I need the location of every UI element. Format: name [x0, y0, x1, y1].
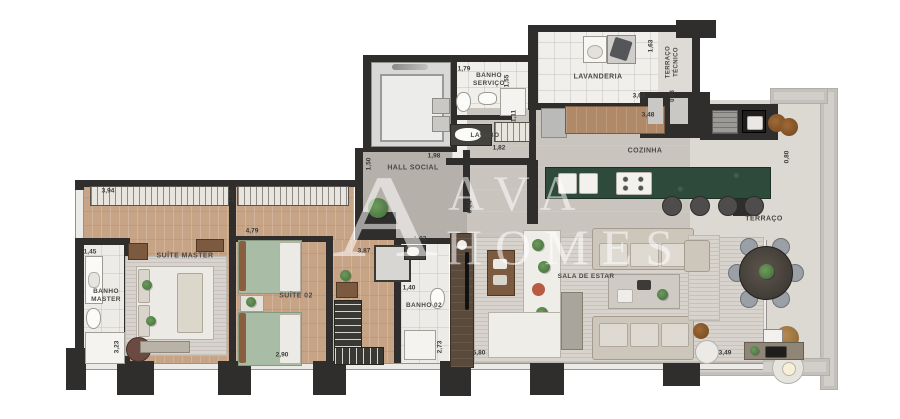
wall-lavabo-bottom	[446, 158, 536, 165]
bed2-suite-02	[238, 312, 302, 366]
dresser-suite-master	[196, 239, 224, 252]
speaker	[457, 240, 467, 250]
terrace-dining-table	[739, 246, 793, 300]
duct-shaft-2	[432, 116, 450, 132]
centerpiece-plant	[759, 264, 774, 279]
wall-servico-top	[446, 55, 536, 62]
sink-banho-master	[88, 272, 100, 288]
tv-screen	[465, 252, 469, 310]
dim-hall-depth: 6,04	[467, 201, 474, 214]
wall-lavanderia-left	[528, 25, 538, 110]
dim-suite-master-width: 2,90	[276, 352, 289, 359]
island-stool-1	[662, 196, 682, 216]
terrace-lounge-chair	[684, 240, 710, 272]
dim-lavabo-counter: 1,11	[511, 110, 518, 122]
sink-banho-servico	[478, 92, 497, 105]
coffee-table-wood	[487, 250, 515, 296]
label-sala-de-estar: SALA DE ESTAR	[558, 273, 615, 281]
pillar-2	[117, 361, 154, 395]
label-terraco: TERRAÇO	[745, 216, 782, 225]
dim-closet: 3,87	[358, 248, 371, 255]
label-lavabo: LAVABO	[471, 132, 500, 140]
terrace-parapet-top	[770, 88, 828, 104]
dim-sala-width: 5,80	[473, 350, 486, 357]
laundry-sink	[583, 36, 607, 63]
books	[617, 289, 633, 303]
label-terraco-tecnico: TERRAÇO TÉCNICO	[666, 39, 681, 85]
wall-left-upper	[75, 180, 84, 190]
blanket-fold	[177, 273, 203, 333]
seat-cushion	[599, 243, 628, 267]
dim-wardrobe-depth: 1,02	[229, 190, 236, 203]
ottoman	[561, 292, 583, 350]
bed-suite-master	[136, 266, 214, 340]
pillar-6	[530, 361, 564, 395]
wall-tecnico-top-block	[676, 20, 716, 38]
toilet-banho-servico	[456, 92, 471, 112]
floor-plan: BANHO MASTER SUÍTE MASTER SUÍTE 02 BANHO…	[0, 0, 900, 419]
dim-suite-master-wardrobe: 3,94	[102, 188, 115, 195]
cushion	[532, 239, 544, 251]
books	[493, 275, 507, 285]
dim-banho-02-width: 1,40	[403, 285, 416, 292]
sofa-top	[592, 228, 694, 270]
pillar-4	[313, 361, 346, 395]
nightstand-suite-master	[128, 243, 148, 260]
center-table	[608, 274, 680, 309]
dim-cozinha-counter: 3,48	[642, 112, 655, 119]
oven-stack	[712, 110, 738, 134]
window-band-bottom	[84, 363, 763, 370]
label-lavanderia: LAVANDERIA	[574, 74, 623, 83]
label-banho-master: BANHO MASTER	[86, 288, 126, 304]
dim-lavabo-width: 1,82	[493, 145, 506, 152]
kitchen-island	[545, 167, 771, 199]
wardrobe-suite-02	[237, 186, 349, 206]
duct-shaft-1	[432, 98, 450, 114]
dim-banho-servico-depth: 1,55	[504, 75, 511, 88]
lamp	[782, 362, 796, 376]
dim-banho-master-width: 1,45	[84, 249, 97, 256]
shelf-corridor	[336, 282, 358, 298]
duvet-white	[279, 242, 301, 292]
label-cozinha: COZINHA	[628, 148, 663, 157]
cushion-green	[142, 280, 152, 290]
stairs-lower-run	[334, 347, 384, 365]
plant-corridor	[340, 270, 351, 281]
dim-hall-top: 1,98	[428, 153, 441, 160]
plant-suite-02	[246, 297, 256, 307]
label-banho-02: BANHO 02	[406, 302, 442, 310]
wall-suite-master-suite02	[229, 186, 236, 364]
bench-suite-master	[140, 341, 190, 353]
tv-wall	[450, 233, 474, 368]
cushion-red	[532, 283, 545, 296]
counter-panel-2	[670, 98, 688, 124]
kitchen-gray-cabinet	[541, 108, 567, 138]
sink-banho-02	[407, 247, 419, 256]
headboard	[239, 241, 246, 291]
wall-banho-master-top	[75, 238, 130, 245]
dim-terraco-counter: 0,80	[784, 151, 791, 164]
dim-terraco-tecnico-width: 0,63	[670, 90, 676, 102]
headboard	[239, 313, 246, 363]
dim-lavanderia-depth: 1,63	[648, 40, 655, 53]
table-plant	[657, 289, 668, 300]
wall-corridor-kitchen	[527, 160, 538, 224]
pillar-1	[66, 348, 86, 390]
wall-suite02-right	[326, 236, 333, 364]
dim-suite-02-top: 4,79	[246, 228, 259, 235]
washing-machine	[607, 35, 636, 64]
dim-banho-master-depth: 3,23	[114, 341, 121, 354]
pillar-3	[218, 361, 251, 395]
label-hall-social: HALL SOCIAL	[387, 165, 438, 174]
shower-banho-02	[404, 330, 436, 360]
dim-banho-servico-width: 1,79	[458, 66, 471, 73]
island-stool-3	[718, 196, 738, 216]
seat-cushion	[630, 243, 659, 267]
island-stool-2	[690, 196, 710, 216]
island-sink-module	[579, 173, 598, 194]
kitchen-sink	[742, 110, 766, 133]
dim-terraco-width: 3,49	[719, 350, 732, 357]
bench-plant	[750, 346, 759, 355]
terrace-parapet-right	[820, 88, 838, 390]
dim-hall-left: 1,50	[366, 158, 373, 171]
basin	[587, 45, 603, 59]
bed1-suite-02	[238, 240, 302, 294]
toilet-banho-master	[86, 308, 101, 329]
label-suite-02: SUÍTE 02	[279, 293, 313, 302]
elevator-door	[392, 64, 428, 70]
wall-lavanderia-top	[530, 25, 695, 32]
drum	[609, 37, 632, 62]
grill	[765, 346, 787, 358]
books	[493, 259, 507, 269]
terrace-side-round-wood	[693, 323, 709, 339]
dim-lavanderia-width: 3,62	[633, 93, 646, 100]
seat-cushion	[599, 323, 628, 347]
window-banho-master	[75, 190, 84, 240]
island-stool-4	[744, 196, 764, 216]
cushion	[538, 261, 550, 273]
seat-cushion	[630, 323, 659, 347]
sofa-bottom	[592, 316, 694, 360]
island-sink-module	[558, 173, 577, 194]
terrace-round-stool	[780, 118, 798, 136]
dim-banho-02-top: 1,03	[414, 236, 427, 243]
grill-bench	[744, 342, 804, 360]
sofa-l-horizontal	[488, 312, 561, 358]
label-suite-master: SUÍTE MASTER	[157, 253, 214, 262]
island-cooktop	[616, 172, 652, 195]
plant-hall	[368, 198, 388, 218]
terrace-side-round-white	[695, 340, 719, 364]
cushion-green	[146, 316, 156, 326]
tray	[637, 280, 651, 290]
dim-banho-02-depth: 2,73	[437, 341, 444, 354]
seat-cushion	[661, 323, 689, 347]
sink-bowl	[747, 116, 763, 130]
